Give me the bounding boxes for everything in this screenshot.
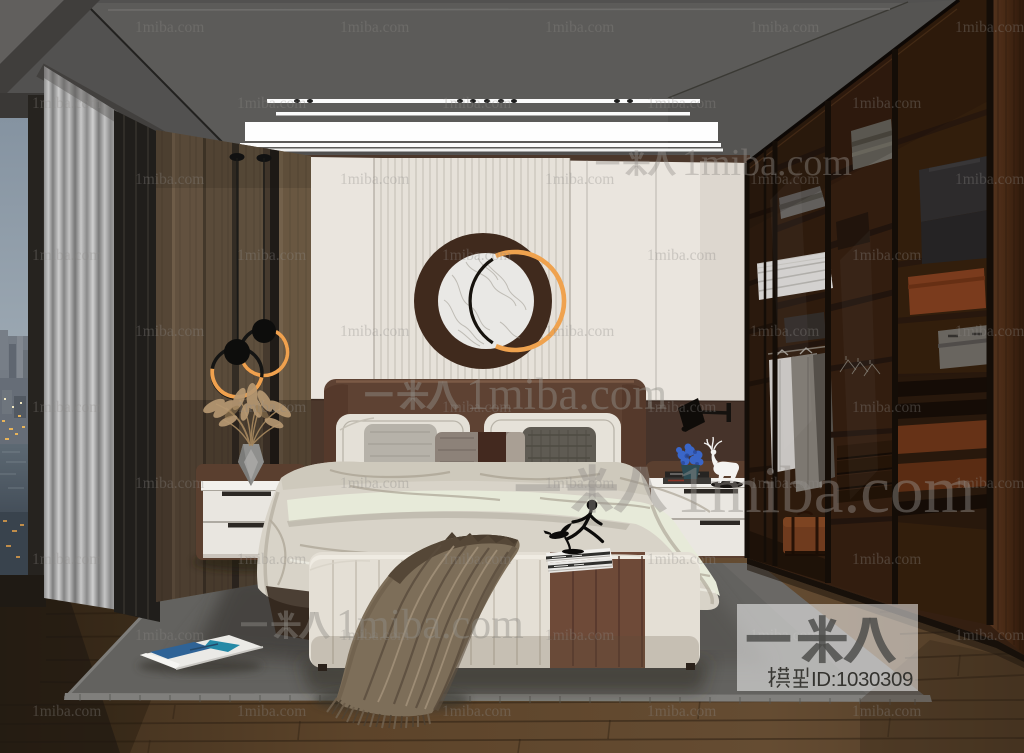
- svg-text:1miba.com: 1miba.com: [32, 95, 101, 112]
- svg-text:1miba.com: 1miba.com: [545, 19, 614, 36]
- svg-text:1miba.com: 1miba.com: [682, 142, 852, 184]
- svg-text:1miba.com: 1miba.com: [135, 19, 204, 36]
- svg-text:1miba.com: 1miba.com: [466, 369, 667, 419]
- svg-text:1miba.com: 1miba.com: [32, 551, 101, 568]
- svg-text:1miba.com: 1miba.com: [545, 627, 614, 644]
- svg-text:1miba.com: 1miba.com: [135, 627, 204, 644]
- svg-text:1miba.com: 1miba.com: [340, 19, 409, 36]
- svg-text:1miba.com: 1miba.com: [647, 703, 716, 720]
- svg-text:1miba.com: 1miba.com: [545, 171, 614, 188]
- svg-text:1miba.com: 1miba.com: [340, 475, 409, 492]
- svg-text:1miba.com: 1miba.com: [135, 171, 204, 188]
- svg-text:1miba.com: 1miba.com: [442, 703, 511, 720]
- svg-text:1miba.com: 1miba.com: [340, 323, 409, 340]
- svg-text:1miba.com: 1miba.com: [135, 475, 204, 492]
- svg-text:1miba.com: 1miba.com: [750, 19, 819, 36]
- svg-text:1miba.com: 1miba.com: [237, 703, 306, 720]
- svg-text:1miba.com: 1miba.com: [676, 453, 976, 527]
- svg-text:1miba.com: 1miba.com: [32, 399, 101, 416]
- svg-text:1miba.com: 1miba.com: [852, 551, 921, 568]
- svg-text:1miba.com: 1miba.com: [237, 551, 306, 568]
- svg-text:1miba.com: 1miba.com: [852, 399, 921, 416]
- svg-text:1miba.com: 1miba.com: [135, 323, 204, 340]
- svg-text:1miba.com: 1miba.com: [340, 171, 409, 188]
- svg-text:1miba.com: 1miba.com: [647, 247, 716, 264]
- svg-text:1miba.com: 1miba.com: [32, 703, 101, 720]
- svg-text:1miba.com: 1miba.com: [32, 247, 101, 264]
- svg-text:1miba.com: 1miba.com: [442, 247, 511, 264]
- svg-text:1miba.com: 1miba.com: [852, 247, 921, 264]
- svg-text:1miba.com: 1miba.com: [955, 323, 1024, 340]
- svg-text:ID:1030309: ID:1030309: [811, 668, 913, 691]
- svg-text:1miba.com: 1miba.com: [852, 95, 921, 112]
- svg-text:1miba.com: 1miba.com: [647, 551, 716, 568]
- svg-text:1miba.com: 1miba.com: [336, 602, 524, 648]
- svg-text:1miba.com: 1miba.com: [442, 551, 511, 568]
- svg-text:1miba.com: 1miba.com: [237, 399, 306, 416]
- svg-text:1miba.com: 1miba.com: [442, 95, 511, 112]
- svg-text:1miba.com: 1miba.com: [237, 95, 306, 112]
- svg-text:1miba.com: 1miba.com: [955, 171, 1024, 188]
- svg-text:1miba.com: 1miba.com: [647, 95, 716, 112]
- svg-text:1miba.com: 1miba.com: [545, 323, 614, 340]
- svg-text:1miba.com: 1miba.com: [955, 19, 1024, 36]
- svg-text:1miba.com: 1miba.com: [852, 703, 921, 720]
- svg-text:1miba.com: 1miba.com: [955, 627, 1024, 644]
- svg-text:1miba.com: 1miba.com: [237, 247, 306, 264]
- svg-text:1miba.com: 1miba.com: [750, 323, 819, 340]
